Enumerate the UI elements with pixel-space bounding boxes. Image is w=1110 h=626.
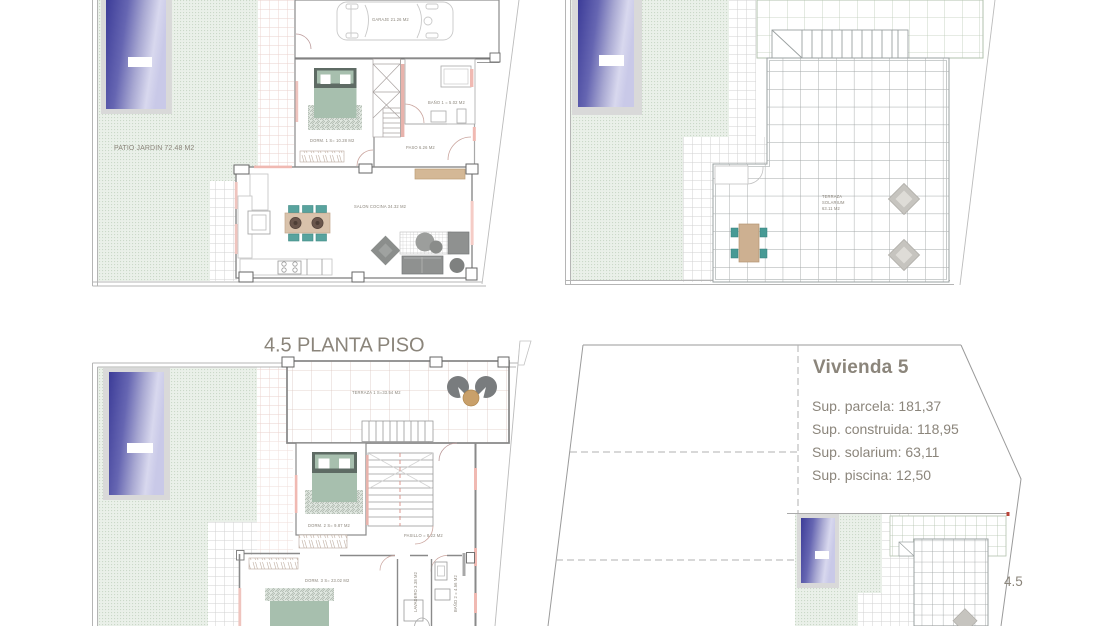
svg-text:PASO 6.26 M2: PASO 6.26 M2	[406, 145, 435, 150]
svg-text:BAÑO 1 = 5.02 M2: BAÑO 1 = 5.02 M2	[428, 100, 465, 105]
svg-text:DORM. 3 S= 23.02 M2: DORM. 3 S= 23.02 M2	[305, 578, 350, 583]
svg-text:Vivienda 5: Vivienda 5	[813, 357, 909, 378]
svg-text:SALON COCINA 34.32 M2: SALON COCINA 34.32 M2	[354, 204, 407, 209]
svg-text:DORM. 1 S= 10.28 M2: DORM. 1 S= 10.28 M2	[310, 138, 355, 143]
svg-text:Sup. construida: 118,95: Sup. construida: 118,95	[812, 421, 959, 437]
svg-text:63.11 M2: 63.11 M2	[822, 206, 841, 211]
svg-text:Sup. solarium: 63,11: Sup. solarium: 63,11	[812, 444, 940, 460]
svg-text:4.5: 4.5	[1004, 574, 1023, 589]
svg-text:BAÑO 2 = 4.56 M2: BAÑO 2 = 4.56 M2	[453, 575, 458, 612]
svg-text:PATIO JARDIN 72.48 M2: PATIO JARDIN 72.48 M2	[114, 145, 194, 152]
svg-text:DORM. 2 S= 9.87 M2: DORM. 2 S= 9.87 M2	[308, 523, 351, 528]
svg-text:Sup. piscina: 12,50: Sup. piscina: 12,50	[812, 467, 931, 483]
svg-text:SOLARIUM: SOLARIUM	[822, 200, 845, 205]
svg-text:PASILLO = 8.22 M2: PASILLO = 8.22 M2	[404, 533, 443, 538]
svg-text:Sup. parcela: 181,37: Sup. parcela: 181,37	[812, 398, 941, 414]
svg-text:TERRAZA: TERRAZA	[822, 194, 842, 199]
svg-text:LAVADERO 3.38 M2: LAVADERO 3.38 M2	[413, 571, 418, 612]
svg-text:TERRAZA 1 S=33.54 M2: TERRAZA 1 S=33.54 M2	[352, 390, 401, 395]
svg-text:4.5 PLANTA PISO: 4.5 PLANTA PISO	[264, 335, 424, 357]
svg-text:GARAJE 21.26 M2: GARAJE 21.26 M2	[372, 17, 409, 22]
